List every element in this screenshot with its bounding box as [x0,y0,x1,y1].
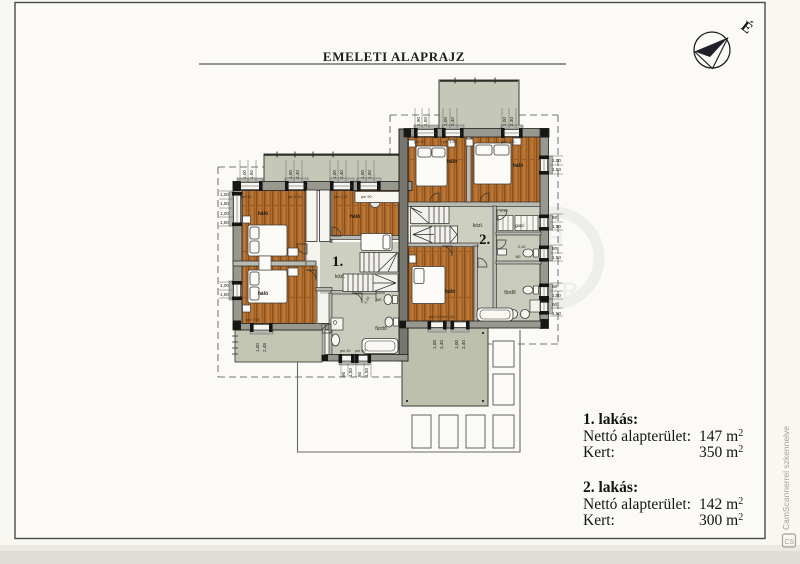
svg-text:1,00: 1,00 [432,340,437,349]
svg-text:1,00: 1,00 [443,117,448,126]
svg-text:1. lakás:: 1. lakás: [583,411,638,428]
svg-text:1,50: 1,50 [220,201,229,206]
svg-text:1,50: 1,50 [348,368,353,377]
svg-text:háló: háló [447,159,457,165]
svg-text:közl.: közl. [473,223,483,229]
svg-text:háló: háló [350,214,360,220]
svg-text:147 m2: 147 m2 [699,428,743,445]
svg-text:pm 1,90: pm 1,90 [288,195,302,199]
svg-text:1.: 1. [332,254,344,270]
svg-text:Nettó alapterület:: Nettó alapterület: [583,496,691,513]
svg-text:1,00: 1,00 [255,343,260,352]
svg-text:1,50: 1,50 [552,167,561,172]
svg-text:wc: wc [376,297,381,302]
svg-text:pm 0,00m 1,26: pm 0,00m 1,26 [429,315,454,319]
svg-text:90: 90 [341,371,346,377]
svg-text:60: 60 [552,284,558,289]
svg-text:közl.: közl. [335,274,345,280]
svg-text:2,48: 2,48 [262,343,267,352]
svg-text:2. lakás:: 2. lakás: [583,479,638,496]
svg-text:2,40: 2,40 [461,340,466,349]
svg-text:1,00: 1,00 [454,340,459,349]
svg-text:350 m2: 350 m2 [699,444,743,461]
svg-text:2,40: 2,40 [509,117,514,126]
svg-text:pm 1,20: pm 1,20 [334,195,348,199]
svg-text:pm 2,20: pm 2,20 [501,140,515,144]
svg-text:Nettó alapterület:: Nettó alapterület: [583,428,691,445]
svg-text:pm 7,05: pm 7,05 [246,318,260,322]
svg-text:pm 90: pm 90 [361,195,372,199]
svg-text:1,00: 1,00 [360,170,365,179]
svg-text:Kert:: Kert: [583,444,615,461]
svg-text:pm 90: pm 90 [241,195,252,199]
svg-text:pm 1,90: pm 1,90 [443,140,457,144]
svg-text:1,50: 1,50 [423,117,428,126]
svg-text:wc: wc [515,254,520,259]
svg-text:1,00: 1,00 [332,170,337,179]
svg-text:1,50: 1,50 [364,368,369,377]
svg-text:fürdő: fürdő [504,290,516,296]
svg-text:háló: háló [258,291,268,297]
svg-text:2.: 2. [479,232,491,248]
svg-text:1,00: 1,00 [220,283,229,288]
svg-text:1,50: 1,50 [552,224,561,229]
svg-text:142 m2: 142 m2 [699,496,743,513]
svg-text:CamScannerrel szkennelve: CamScannerrel szkennelve [781,426,791,530]
svg-text:80: 80 [357,371,362,377]
svg-text:1,00: 1,00 [288,170,293,179]
svg-text:2,10: 2,10 [518,245,525,249]
svg-text:fürdő: fürdő [375,326,387,332]
svg-text:Kert:: Kert: [583,512,615,529]
svg-text:60: 60 [552,302,558,307]
svg-text:2,40: 2,40 [439,340,444,349]
svg-text:CS: CS [785,539,795,546]
svg-text:1,50: 1,50 [220,292,229,297]
svg-text:1,50: 1,50 [552,255,561,260]
svg-text:1,50: 1,50 [220,220,229,225]
svg-text:háló: háló [513,163,523,169]
svg-text:300 m2: 300 m2 [699,512,743,529]
svg-text:pm 90: pm 90 [355,349,366,353]
svg-text:pm 90: pm 90 [340,349,351,353]
svg-text:60: 60 [552,215,558,220]
svg-text:háló: háló [258,211,268,217]
svg-text:pm 90: pm 90 [414,140,425,144]
svg-text:EMELETI ALAPRAJZ: EMELETI ALAPRAJZ [323,49,465,64]
svg-text:1,00: 1,00 [502,117,507,126]
svg-text:gard.: gard. [515,223,525,228]
svg-text:1,50: 1,50 [367,170,372,179]
svg-text:2,40: 2,40 [450,117,455,126]
svg-text:1,00: 1,00 [552,158,561,163]
svg-text:háló: háló [445,289,455,295]
svg-text:1,50: 1,50 [249,170,254,179]
svg-text:80: 80 [552,246,558,251]
svg-text:1,50: 1,50 [552,293,561,298]
svg-text:1,90: 1,90 [416,117,421,126]
svg-text:1,00: 1,00 [220,192,229,197]
svg-text:1,00: 1,00 [220,211,229,216]
svg-text:2,40: 2,40 [339,170,344,179]
svg-text:2,10: 2,10 [500,209,507,213]
svg-text:1,00: 1,00 [242,170,247,179]
svg-text:2,40: 2,40 [295,170,300,179]
svg-text:1,50: 1,50 [552,311,561,316]
